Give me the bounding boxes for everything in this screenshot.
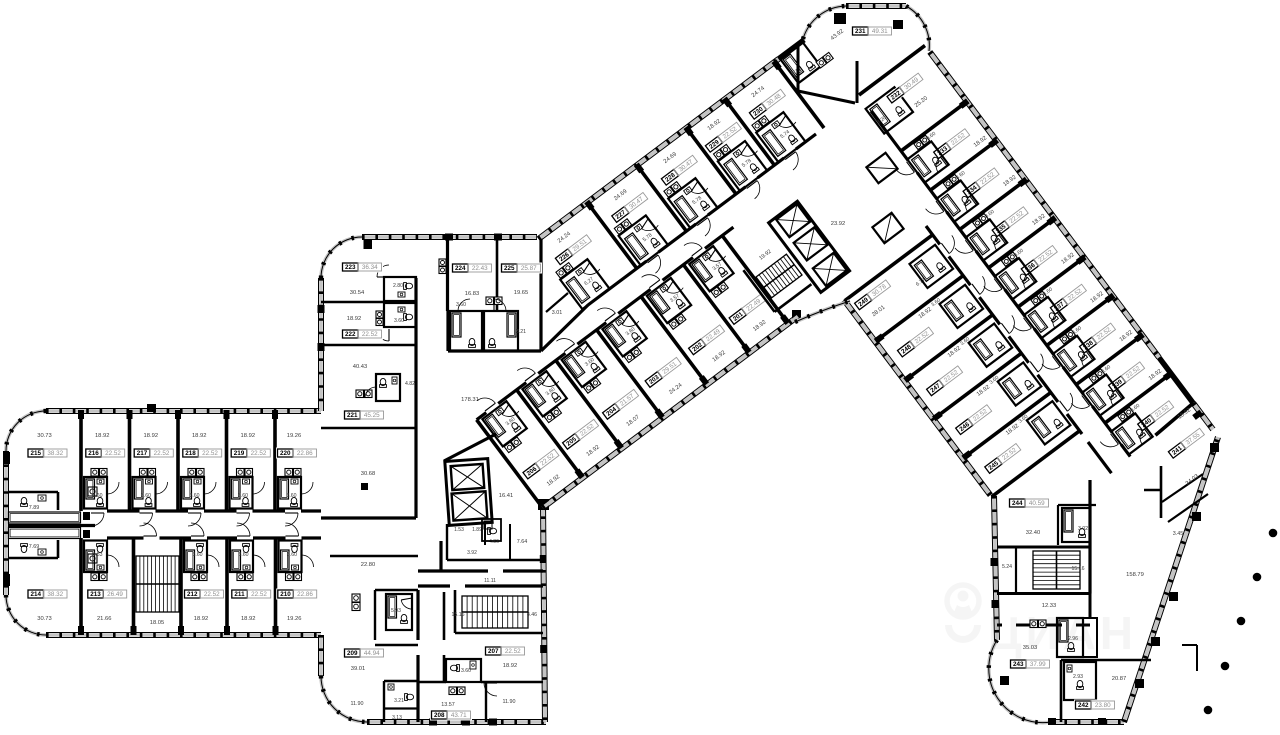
svg-text:3.21: 3.21: [516, 329, 526, 335]
svg-text:28.01: 28.01: [871, 305, 886, 319]
svg-text:214: 214: [31, 591, 42, 598]
svg-text:3.60: 3.60: [394, 318, 404, 324]
svg-text:2.93: 2.93: [1073, 674, 1083, 680]
svg-text:243: 243: [1013, 661, 1024, 668]
svg-text:22.52: 22.52: [202, 450, 218, 457]
svg-text:3.60: 3.60: [505, 416, 517, 427]
svg-text:4.83: 4.83: [92, 552, 102, 558]
svg-text:4.82: 4.82: [405, 381, 415, 387]
svg-text:5.78: 5.78: [642, 232, 654, 243]
svg-text:15.16: 15.16: [1072, 566, 1085, 572]
svg-text:19.65: 19.65: [514, 290, 529, 296]
svg-text:49.31: 49.31: [872, 28, 888, 35]
svg-text:3.60: 3.60: [238, 493, 248, 499]
svg-text:19.92: 19.92: [758, 249, 772, 262]
svg-text:43.71: 43.71: [451, 712, 467, 719]
svg-text:39.01: 39.01: [351, 666, 366, 672]
svg-text:18.07: 18.07: [626, 414, 641, 428]
svg-text:3.01: 3.01: [552, 310, 563, 316]
svg-text:22.52: 22.52: [362, 331, 378, 338]
svg-text:1.89: 1.89: [472, 527, 482, 533]
svg-text:ЦИАН: ЦИАН: [988, 607, 1137, 659]
svg-text:18.92: 18.92: [194, 616, 209, 622]
svg-text:21.66: 21.66: [97, 616, 112, 622]
svg-text:3.92: 3.92: [467, 550, 477, 556]
svg-text:178.31: 178.31: [461, 397, 479, 403]
svg-text:5.78: 5.78: [741, 158, 753, 169]
svg-text:207: 207: [488, 648, 499, 655]
svg-text:3.13: 3.13: [392, 715, 402, 721]
svg-text:223: 223: [345, 264, 356, 271]
svg-text:25.20: 25.20: [914, 95, 929, 109]
svg-text:3.21: 3.21: [394, 698, 404, 704]
svg-text:5.78: 5.78: [691, 195, 703, 206]
svg-text:24.24: 24.24: [557, 230, 573, 244]
svg-text:3.60: 3.60: [238, 552, 248, 558]
svg-text:20.87: 20.87: [1112, 676, 1127, 682]
svg-text:7.89: 7.89: [29, 505, 40, 511]
svg-text:30.54: 30.54: [350, 290, 365, 296]
svg-text:19.26: 19.26: [287, 616, 302, 622]
svg-text:13.57: 13.57: [441, 702, 455, 708]
svg-text:6.27: 6.27: [583, 276, 595, 287]
svg-text:18.92: 18.92: [707, 118, 722, 132]
svg-text:3.57: 3.57: [669, 293, 681, 304]
svg-text:22.86: 22.86: [297, 450, 313, 457]
svg-text:22.52: 22.52: [251, 591, 267, 598]
svg-text:37.99: 37.99: [1030, 661, 1046, 668]
svg-text:32.40: 32.40: [1026, 530, 1041, 536]
svg-text:5.24: 5.24: [1002, 564, 1012, 570]
svg-text:219: 219: [234, 450, 245, 457]
svg-text:3.60: 3.60: [141, 493, 151, 499]
svg-text:25.87: 25.87: [521, 265, 537, 272]
svg-text:3.60: 3.60: [192, 552, 202, 558]
svg-text:4.36: 4.36: [489, 539, 499, 545]
svg-text:1.53: 1.53: [454, 527, 464, 533]
svg-text:3.60: 3.60: [461, 668, 471, 674]
svg-text:211: 211: [234, 591, 245, 598]
svg-text:22.52: 22.52: [154, 450, 170, 457]
svg-text:18.92: 18.92: [241, 616, 256, 622]
svg-text:18.92: 18.92: [586, 444, 601, 458]
svg-text:3.60: 3.60: [287, 552, 297, 558]
svg-text:3.02: 3.02: [1078, 526, 1088, 532]
svg-text:3.60: 3.60: [286, 493, 296, 499]
svg-text:18.92: 18.92: [95, 433, 110, 439]
svg-text:24.24: 24.24: [668, 382, 684, 396]
svg-text:7.69: 7.69: [29, 544, 40, 550]
svg-text:36.34: 36.34: [362, 264, 378, 271]
svg-text:4.46: 4.46: [527, 612, 537, 618]
svg-text:38.32: 38.32: [47, 450, 63, 457]
svg-text:40.59: 40.59: [1029, 500, 1045, 507]
svg-text:18.92: 18.92: [241, 433, 256, 439]
svg-text:30.73: 30.73: [37, 433, 52, 439]
svg-text:44.94: 44.94: [364, 650, 380, 657]
svg-text:22.43: 22.43: [472, 265, 488, 272]
svg-text:30.73: 30.73: [37, 616, 52, 622]
svg-text:11.90: 11.90: [350, 701, 363, 707]
svg-text:225: 225: [504, 265, 515, 272]
svg-text:16.83: 16.83: [465, 291, 480, 297]
svg-text:15.16: 15.16: [452, 612, 465, 618]
svg-text:18.92: 18.92: [192, 433, 207, 439]
svg-text:18.92: 18.92: [347, 316, 362, 322]
svg-text:22.52: 22.52: [251, 450, 267, 457]
svg-text:18.05: 18.05: [150, 620, 165, 626]
svg-text:158.79: 158.79: [1126, 572, 1144, 578]
svg-text:244: 244: [1012, 500, 1023, 507]
svg-text:212: 212: [187, 591, 198, 598]
svg-text:11.90: 11.90: [502, 699, 515, 705]
svg-text:3.57: 3.57: [712, 261, 724, 272]
svg-text:22.52: 22.52: [105, 450, 121, 457]
svg-text:242: 242: [1078, 702, 1089, 709]
svg-text:18.92: 18.92: [752, 319, 767, 333]
svg-text:3.60: 3.60: [92, 493, 102, 499]
svg-text:24.69: 24.69: [663, 151, 678, 165]
svg-text:22.80: 22.80: [361, 562, 376, 568]
svg-text:215: 215: [31, 450, 42, 457]
svg-text:209: 209: [347, 650, 358, 657]
svg-text:26.49: 26.49: [107, 591, 123, 598]
svg-text:18.92: 18.92: [1177, 407, 1192, 421]
svg-text:45.25: 45.25: [364, 412, 380, 419]
svg-text:16.41: 16.41: [499, 493, 514, 499]
svg-text:22.52: 22.52: [204, 591, 220, 598]
svg-text:216: 216: [88, 450, 99, 457]
svg-text:5.74: 5.74: [779, 129, 791, 140]
svg-text:224: 224: [455, 265, 466, 272]
svg-text:221: 221: [347, 412, 358, 419]
svg-text:18.92: 18.92: [546, 474, 561, 488]
svg-text:217: 217: [137, 450, 148, 457]
svg-text:11.11: 11.11: [484, 578, 496, 584]
svg-text:210: 210: [280, 591, 291, 598]
svg-text:218: 218: [185, 450, 196, 457]
svg-text:40.43: 40.43: [353, 364, 368, 370]
svg-text:23.80: 23.80: [1095, 702, 1111, 709]
svg-text:5.93: 5.93: [391, 608, 401, 614]
svg-text:23.92: 23.92: [831, 221, 846, 227]
svg-text:208: 208: [434, 712, 445, 719]
svg-text:22.52: 22.52: [505, 648, 521, 655]
svg-text:3.60: 3.60: [189, 493, 199, 499]
svg-text:24.74: 24.74: [751, 85, 767, 99]
svg-text:3.60: 3.60: [584, 357, 596, 368]
svg-text:22.86: 22.86: [297, 591, 313, 598]
svg-text:222: 222: [345, 331, 356, 338]
svg-text:19.26: 19.26: [287, 433, 302, 439]
svg-text:30.68: 30.68: [361, 471, 376, 477]
svg-text:231: 231: [855, 28, 866, 35]
svg-text:3.60: 3.60: [625, 326, 637, 337]
svg-text:213: 213: [90, 591, 101, 598]
svg-text:3.60: 3.60: [545, 386, 557, 397]
svg-text:18.92: 18.92: [144, 433, 159, 439]
svg-text:3.45: 3.45: [1173, 531, 1184, 537]
svg-text:43.92: 43.92: [830, 28, 845, 42]
svg-text:18.92: 18.92: [712, 350, 727, 364]
svg-text:220: 220: [280, 450, 291, 457]
svg-text:2.80: 2.80: [393, 283, 403, 289]
svg-text:34.03: 34.03: [1185, 473, 1200, 487]
svg-text:18.92: 18.92: [503, 663, 518, 669]
svg-text:38.32: 38.32: [47, 591, 63, 598]
svg-text:24.69: 24.69: [613, 189, 628, 203]
svg-text:7.64: 7.64: [517, 539, 528, 545]
